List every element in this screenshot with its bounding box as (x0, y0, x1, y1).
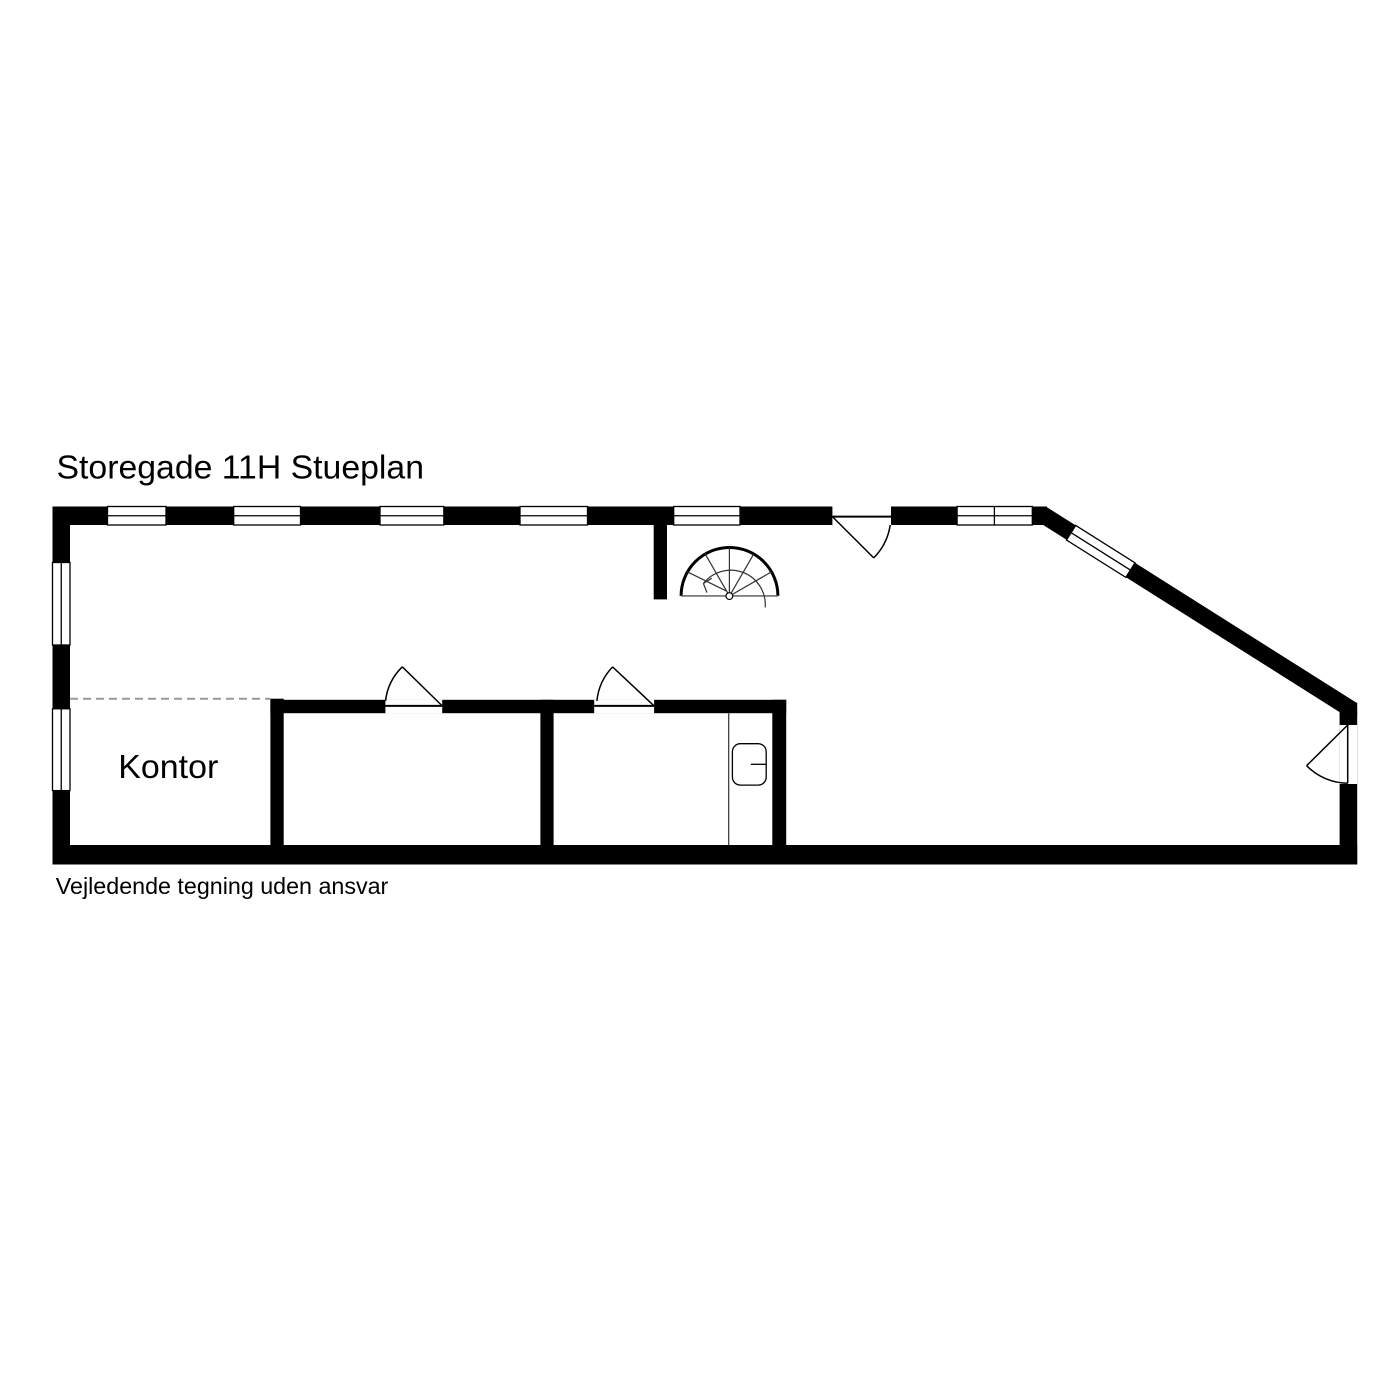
svg-text:Vejledende tegning uden ansvar: Vejledende tegning uden ansvar (56, 873, 389, 899)
svg-text:Kontor: Kontor (118, 748, 218, 785)
svg-text:Storegade 11H Stueplan: Storegade 11H Stueplan (57, 448, 425, 485)
